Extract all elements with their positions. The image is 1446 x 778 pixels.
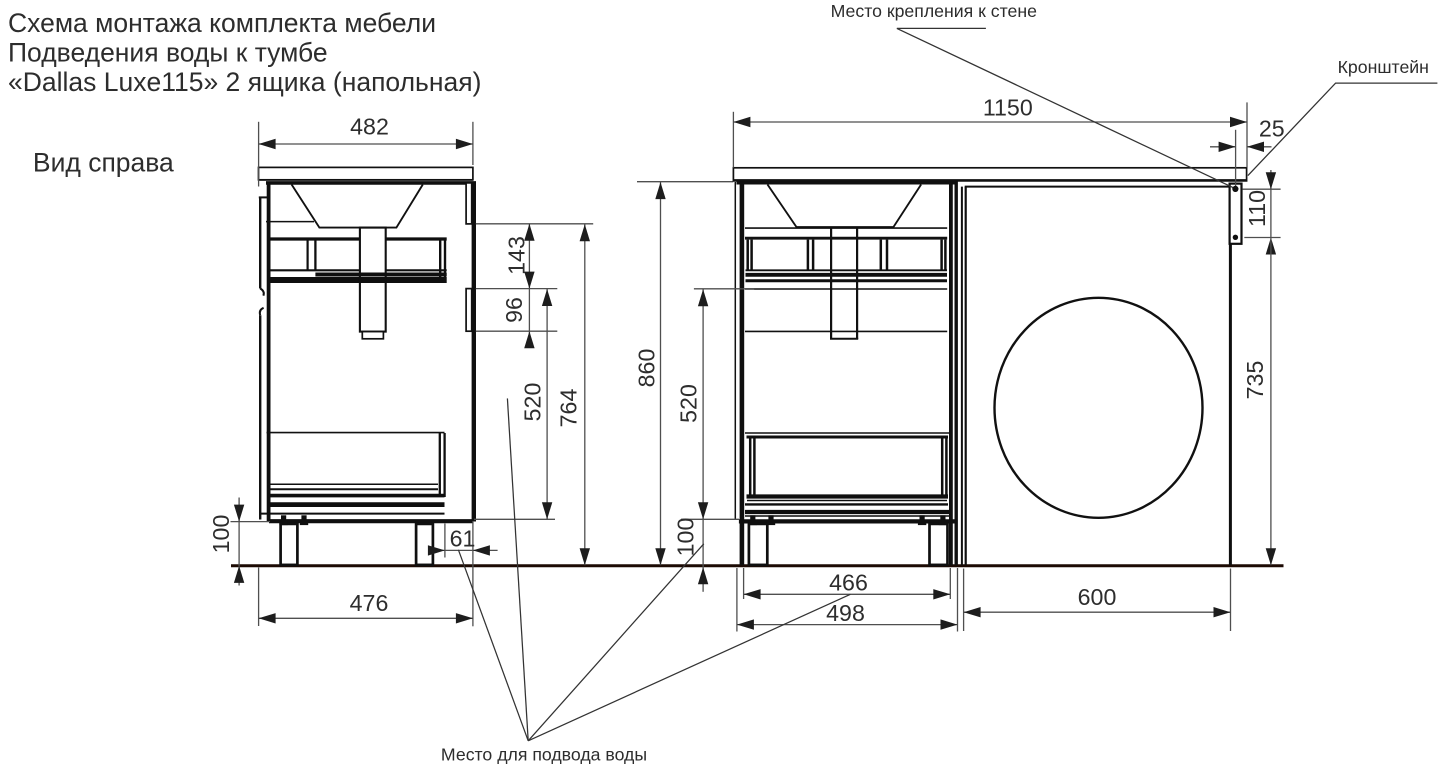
svg-text:«Dallas Luxe115» 2 ящика (напо: «Dallas Luxe115» 2 ящика (напольная): [8, 67, 481, 97]
svg-text:25: 25: [1259, 116, 1285, 142]
svg-text:Схема монтажа комплекта мебели: Схема монтажа комплекта мебели: [8, 8, 436, 38]
svg-text:520: 520: [676, 384, 702, 423]
svg-text:498: 498: [826, 600, 865, 626]
svg-text:96: 96: [501, 297, 527, 323]
svg-text:476: 476: [350, 590, 389, 616]
svg-text:Вид справа: Вид справа: [33, 148, 174, 178]
svg-text:600: 600: [1078, 584, 1117, 610]
svg-text:735: 735: [1242, 361, 1268, 400]
svg-text:100: 100: [208, 515, 234, 554]
svg-text:860: 860: [634, 349, 660, 388]
svg-text:520: 520: [520, 383, 546, 422]
svg-text:764: 764: [556, 389, 582, 428]
svg-text:466: 466: [829, 569, 868, 595]
svg-text:482: 482: [350, 113, 389, 139]
svg-text:143: 143: [504, 236, 530, 275]
svg-text:100: 100: [673, 518, 699, 557]
svg-text:110: 110: [1244, 190, 1270, 227]
svg-text:Подведения воды к тумбе: Подведения воды к тумбе: [8, 37, 328, 67]
svg-text:Кронштейн: Кронштейн: [1338, 57, 1429, 77]
svg-text:1150: 1150: [983, 95, 1033, 121]
svg-text:Место крепления к стене: Место крепления к стене: [831, 1, 1038, 21]
svg-text:61: 61: [450, 525, 476, 551]
svg-text:Место для подвода воды: Место для подвода воды: [441, 744, 647, 764]
